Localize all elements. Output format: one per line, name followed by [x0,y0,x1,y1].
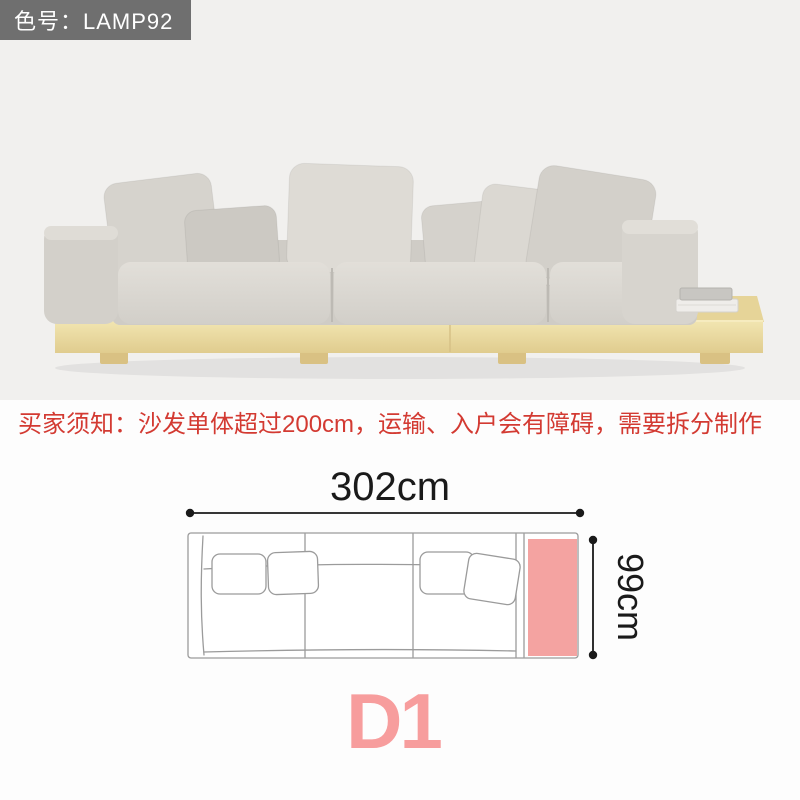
seat-cushion-left [118,262,330,324]
width-dimension-line [186,509,584,517]
sofa-photo-illustration [0,0,800,400]
topview-cushion-1 [212,554,266,594]
pillow-center-large [286,163,414,275]
product-detail-image: 色号：LAMP92 买家须知：沙发单体超过200cm，运输、入户会有障碍，需要拆… [0,0,800,800]
depth-dimension-label: 99cm [610,553,651,641]
books-stack [676,288,738,312]
sofa-top-view-sketch [188,533,578,658]
topview-cushion-4 [463,552,522,606]
seat-cushion-middle [334,262,546,324]
topview-cushion-2 [267,551,318,595]
armrest-right-top [622,220,698,234]
sofa-seats [118,262,696,324]
color-code-badge: 色号：LAMP92 [0,0,191,40]
side-table-highlight-block [528,539,577,656]
variant-label: D1 [0,676,786,767]
dimension-diagram: 302cm [0,440,800,680]
armrest-left [44,226,118,324]
buyer-notice: 买家须知：沙发单体超过200cm，运输、入户会有障碍，需要拆分制作 [18,408,788,442]
topview-outline [188,533,578,658]
depth-dimension-line [589,536,597,659]
armrest-left-top [44,226,118,240]
book-top [680,288,732,300]
floor-shadow [55,357,745,379]
color-code-label: 色号：LAMP92 [14,4,173,36]
width-dimension-label: 302cm [330,465,450,509]
sofa-photo-section: 色号：LAMP92 [0,0,800,400]
